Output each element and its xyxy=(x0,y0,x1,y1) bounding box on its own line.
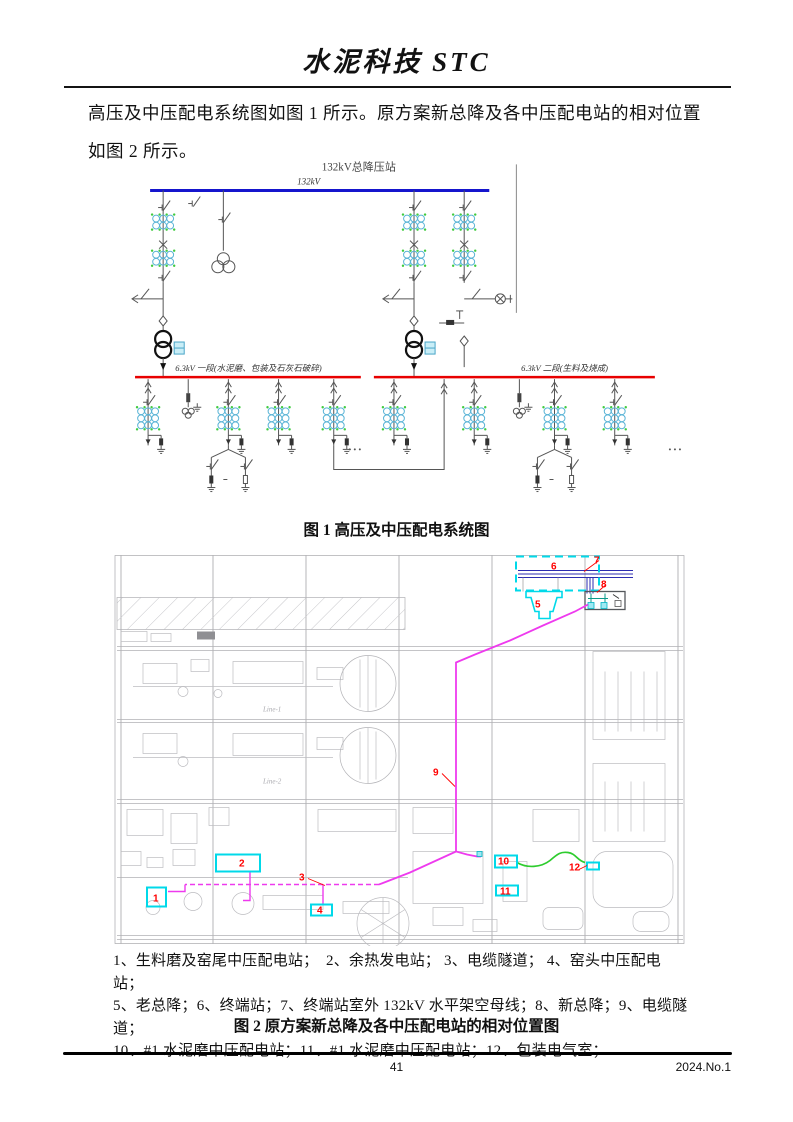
mv-bus1-label: 6.3kV 一段(水泥磨、包装及石灰石破碎) xyxy=(175,363,322,373)
marker-5: 5 xyxy=(535,600,541,611)
hv-pt-feeder xyxy=(188,190,235,272)
hv-bus-voltage-label: 132kV xyxy=(297,176,322,186)
footer-rule xyxy=(63,1052,732,1055)
marker-4: 4 xyxy=(317,906,323,917)
mv-bus2-label: 6.3kV 二段(生料及烧成) xyxy=(521,363,608,373)
marker-3: 3 xyxy=(299,873,305,884)
figure1-one-line-diagram: 132kV总降压站 132kV xyxy=(123,150,695,522)
new-substation-box xyxy=(585,592,625,610)
mv-bus1-feeders xyxy=(136,379,361,491)
body-text-line1: 高压及中压配电系统图如图 1 所示。原方案新总降及各中压配电站的相对位置 xyxy=(88,94,722,132)
footer-issue-number: 2024.No.1 xyxy=(676,1060,731,1074)
plan-line2-label: Line-2 xyxy=(262,778,282,786)
figure1-caption: 图 1 高压及中压配电系统图 xyxy=(0,518,793,540)
marker-2: 2 xyxy=(239,859,245,870)
cable-tunnel-route xyxy=(168,605,588,906)
plan-line1-label: Line-1 xyxy=(262,706,281,714)
figure2-legend: 1、生料磨及窑尾中压配电站； 2、余热发电站； 3、电缆隧道； 4、窑头中压配电… xyxy=(113,950,688,1063)
marker-6: 6 xyxy=(551,562,557,573)
marker-12: 12 xyxy=(569,863,581,874)
marker-1: 1 xyxy=(153,894,159,905)
old-substation-outline xyxy=(526,592,562,619)
marker-7: 7 xyxy=(594,556,600,567)
figure2-caption: 图 2 原方案新总降及各中压配电站的相对位置图 xyxy=(0,1014,793,1036)
overhead-busbar xyxy=(518,571,633,594)
journal-title: 水泥科技 STC xyxy=(0,40,793,79)
marker-11: 11 xyxy=(500,887,511,898)
marker-9: 9 xyxy=(433,768,439,779)
header-rule xyxy=(64,86,731,88)
hv-feeder-1 xyxy=(132,190,184,377)
hv-station-title: 132kV总降压站 xyxy=(322,159,396,173)
legend-line-1: 1、生料磨及窑尾中压配电站； 2、余热发电站； 3、电缆隧道； 4、窑头中压配电… xyxy=(113,950,688,995)
footer-page-number: 41 xyxy=(0,1060,793,1074)
marker-10: 10 xyxy=(498,857,510,868)
figure2-site-plan: Line-1 Line-2 xyxy=(113,551,687,946)
hv-feeder-3 xyxy=(439,190,512,367)
site-plan-background: Line-1 Line-2 xyxy=(115,556,684,947)
journal-page: 水泥科技 STC 高压及中压配电系统图如图 1 所示。原方案新总降及各中压配电站… xyxy=(0,0,793,1122)
whr-station-rect xyxy=(216,855,260,872)
figure1-linework: 132kV总降压站 132kV xyxy=(132,159,681,491)
marker-8: 8 xyxy=(601,580,607,591)
mv-bus2-feeders xyxy=(382,379,681,491)
hv-feeder-2 xyxy=(383,190,435,377)
